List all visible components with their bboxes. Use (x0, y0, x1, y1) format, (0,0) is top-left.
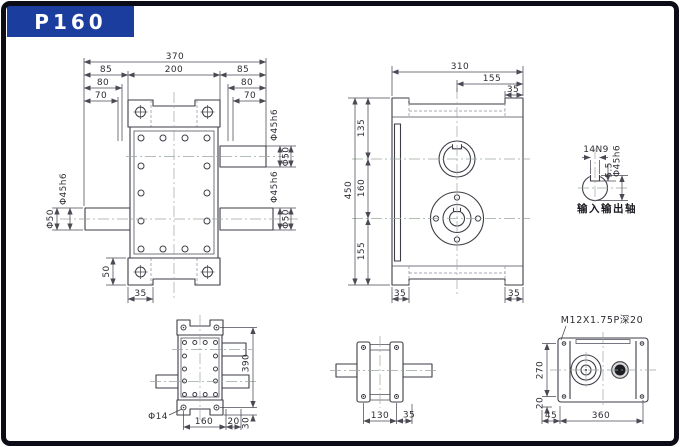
bottom-view: 390 30 Φ14 160 20 (148, 315, 257, 430)
upper-shaft-dia-label: Φ45h6 (270, 109, 280, 141)
dim-155-left: 155 (357, 242, 367, 260)
dim-200: 200 (165, 65, 183, 75)
shaft-detail: 14N9 5.5 Φ45h6 输入输出轴 (577, 145, 637, 215)
dim-35-end: 35 (403, 411, 415, 421)
dim-20-bottom: 20 (227, 417, 239, 427)
dim-450: 450 (344, 181, 354, 199)
dim-85-right: 85 (237, 65, 249, 75)
dim-35-bottom-right: 35 (508, 289, 520, 299)
lower-shaft-dia-label: Φ45h6 (270, 171, 280, 203)
dim-20-rear: 20 (536, 397, 546, 409)
dim-370: 370 (166, 52, 184, 62)
dim-310: 310 (451, 62, 469, 72)
dim-270: 270 (536, 361, 546, 379)
end-view: 130 35 (330, 336, 437, 424)
dim-160: 160 (357, 179, 367, 197)
model-title-box: P160 (7, 6, 134, 37)
dim-35-bottom-left: 35 (394, 289, 406, 299)
dim-155-top: 155 (483, 74, 501, 84)
hole-dia-label: Φ14 (148, 412, 168, 422)
lower-shaft-od-label: Φ50 (282, 209, 292, 229)
dim-35-top: 35 (507, 85, 519, 95)
thread-spec-label: M12X1.75P深20 (561, 315, 643, 326)
shaft-detail-caption: 输入输出轴 (577, 202, 637, 215)
dim-360: 360 (592, 411, 610, 421)
dim-45: 45 (545, 411, 557, 421)
left-shaft-dia-label: Φ45h6 (59, 173, 69, 205)
dim-30: 30 (242, 417, 252, 429)
dim-160-bottom: 160 (195, 417, 213, 427)
rear-view: M12X1.75P深20 270 20 45 360 (536, 315, 657, 424)
page-title: P160 (34, 10, 106, 34)
dim-85-left: 85 (100, 65, 112, 75)
dim-70-left: 70 (95, 91, 107, 101)
dim-390: 390 (242, 354, 252, 372)
side-view: 310 155 35 450 135 160 155 35 35 (344, 62, 530, 303)
dim-130: 130 (371, 411, 389, 421)
dim-135: 135 (357, 119, 367, 137)
dim-35: 35 (134, 289, 146, 299)
catalog-page: 370 85 200 85 80 80 70 70 Φ45h6 Φ50 Φ45h… (0, 0, 680, 447)
upper-shaft-od-label: Φ50 (282, 147, 292, 167)
keyway-width-label: 14N9 (583, 145, 609, 155)
engineering-drawing: 370 85 200 85 80 80 70 70 Φ45h6 Φ50 Φ45h… (0, 0, 680, 447)
dim-70-right: 70 (244, 91, 256, 101)
dim-50: 50 (102, 265, 112, 277)
dim-80-left: 80 (97, 78, 109, 88)
dim-80-right: 80 (241, 78, 253, 88)
detail-shaft-dia-label: Φ45h6 (613, 145, 623, 177)
left-shaft-od-label: Φ50 (46, 209, 56, 229)
front-view: 370 85 200 85 80 80 70 70 Φ45h6 Φ50 Φ45h… (46, 52, 298, 303)
